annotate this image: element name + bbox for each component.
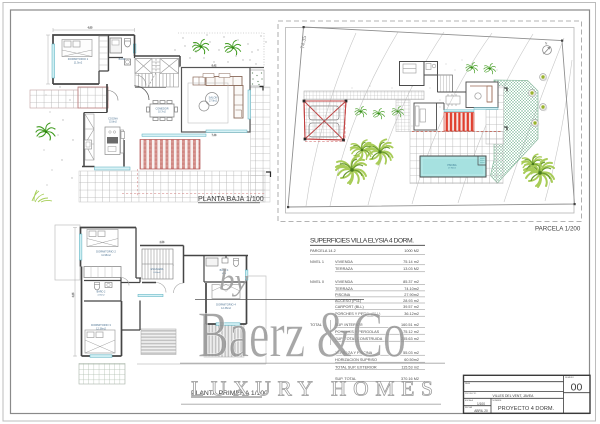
svg-text:15.8m2: 15.8m2 (109, 122, 117, 124)
svg-text:PROYECTO: PROYECTO (465, 393, 477, 395)
svg-text:NIVEL 1: NIVEL 1 (310, 260, 324, 264)
svg-text:27.9m2: 27.9m2 (209, 100, 218, 103)
svg-text:FASE: FASE (465, 382, 471, 385)
svg-text:NUMERO: NUMERO (565, 377, 574, 379)
svg-text:85.37 m2: 85.37 m2 (403, 280, 419, 284)
svg-text:7.48: 7.48 (212, 134, 217, 137)
svg-text:12.36m2: 12.36m2 (96, 327, 106, 330)
svg-text:10.7m2: 10.7m2 (158, 112, 166, 114)
svg-text:27.90m2: 27.90m2 (404, 293, 419, 297)
svg-text:1/100: 1/100 (477, 402, 485, 406)
svg-text:VILLES DEL VENT, JAVEA: VILLES DEL VENT, JAVEA (493, 394, 535, 398)
svg-text:TERRAZA: TERRAZA (335, 267, 353, 271)
svg-text:VIVIENDA: VIVIENDA (335, 280, 353, 284)
svg-text:NOMBRE: NOMBRE (493, 400, 502, 402)
svg-text:00: 00 (571, 382, 583, 394)
svg-text:74.10m2: 74.10m2 (404, 287, 419, 291)
svg-text:11.5m2: 11.5m2 (74, 60, 83, 64)
svg-text:13.03 M2: 13.03 M2 (403, 267, 419, 271)
svg-text:1000 M2: 1000 M2 (404, 249, 419, 253)
svg-text:PARCELA 1/200: PARCELA 1/200 (535, 226, 581, 233)
svg-text:PISCINA: PISCINA (335, 293, 351, 297)
svg-text:4.35m2: 4.35m2 (97, 294, 105, 296)
svg-text:ABRIL 20: ABRIL 20 (474, 409, 488, 413)
svg-text:PROYECTO 4 DORM.: PROYECTO 4 DORM. (498, 406, 555, 412)
svg-text:by: by (219, 262, 249, 297)
svg-text:4.25: 4.25 (72, 292, 75, 297)
svg-text:BAÑO: BAÑO (119, 58, 126, 61)
svg-text:COMEDOR: COMEDOR (155, 108, 168, 111)
svg-text:NIVEL 0: NIVEL 0 (310, 280, 324, 284)
svg-text:Baerz &Co: Baerz &Co (198, 299, 406, 372)
svg-text:27.90m2: 27.90m2 (448, 168, 457, 170)
svg-text:6.42: 6.42 (212, 65, 217, 68)
svg-text:36.12m2: 36.12m2 (404, 312, 419, 316)
svg-text:6.40m2: 6.40m2 (153, 272, 161, 274)
svg-text:SUPERFICIES VILLA ELYSIA 4 DOR: SUPERFICIES VILLA ELYSIA 4 DORM. (310, 238, 414, 245)
svg-text:COCINA: COCINA (108, 118, 118, 121)
svg-text:BAÑO 2: BAÑO 2 (97, 291, 106, 294)
svg-text:LUXURY HOMES: LUXURY HOMES (191, 377, 439, 401)
svg-text:60.50m2: 60.50m2 (404, 358, 419, 362)
svg-text:11.96m2: 11.96m2 (101, 254, 111, 257)
svg-text:PISCINA: PISCINA (447, 164, 457, 167)
svg-text:TERRAZA: TERRAZA (335, 287, 353, 291)
svg-text:74.35: 74.35 (300, 35, 308, 49)
svg-text:4.60: 4.60 (88, 27, 93, 30)
svg-text:ESCALA: ESCALA (465, 399, 474, 402)
svg-text:VIVIENDA: VIVIENDA (335, 260, 353, 264)
svg-text:DORMITORIO 1: DORMITORIO 1 (68, 57, 89, 61)
svg-text:ESCALERA: ESCALERA (151, 268, 164, 271)
svg-text:N: N (545, 42, 548, 46)
svg-text:2.56: 2.56 (160, 241, 165, 244)
svg-text:FECHA: FECHA (465, 406, 472, 409)
svg-text:75.14 m2: 75.14 m2 (403, 260, 419, 264)
svg-text:PLANTA BAJA 1/100: PLANTA BAJA 1/100 (198, 195, 264, 203)
svg-text:PARCELA 14.2: PARCELA 14.2 (310, 249, 336, 253)
